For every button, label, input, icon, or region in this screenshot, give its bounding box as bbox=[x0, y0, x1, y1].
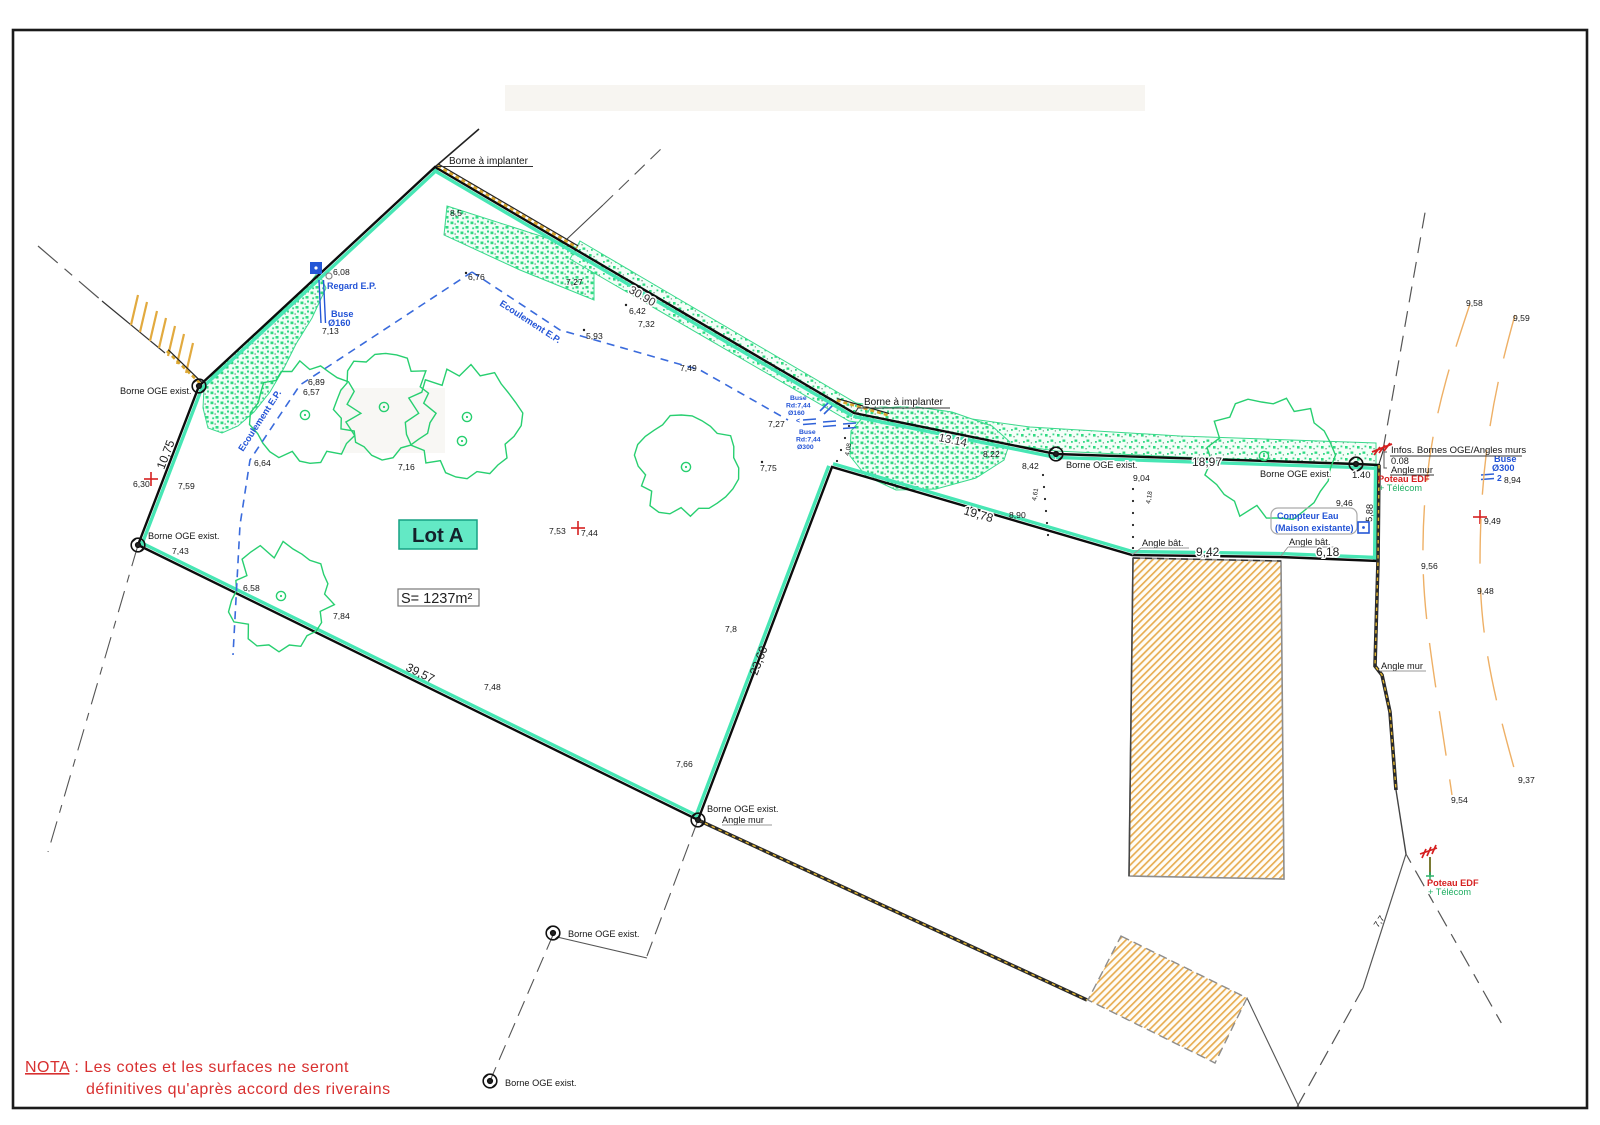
svg-text:6,18: 6,18 bbox=[1316, 545, 1340, 559]
svg-text:Borne OGE exist.: Borne OGE exist. bbox=[707, 804, 779, 814]
svg-text:5,88: 5,88 bbox=[1364, 504, 1375, 522]
svg-text:Borne OGE exist.: Borne OGE exist. bbox=[1260, 469, 1332, 479]
svg-text:NOTA : Les cotes et les surfac: NOTA : Les cotes et les surfaces ne sero… bbox=[25, 1059, 349, 1076]
svg-text:Buse: Buse bbox=[799, 429, 816, 436]
svg-text:7,44: 7,44 bbox=[581, 528, 598, 538]
svg-text:9,58: 9,58 bbox=[1466, 298, 1483, 308]
svg-text:7,48: 7,48 bbox=[484, 682, 501, 692]
svg-text:2: 2 bbox=[1497, 473, 1502, 483]
svg-text:6,42: 6,42 bbox=[629, 306, 646, 316]
svg-text:7,27: 7,27 bbox=[566, 277, 583, 287]
svg-text:Borne OGE exist.: Borne OGE exist. bbox=[505, 1078, 577, 1088]
svg-text:(Maison existante): (Maison existante) bbox=[1275, 523, 1354, 533]
svg-text:<: < bbox=[796, 418, 800, 425]
svg-text:8,94: 8,94 bbox=[1504, 475, 1521, 485]
svg-text:6,57: 6,57 bbox=[303, 387, 320, 397]
svg-text:7,75: 7,75 bbox=[760, 463, 777, 473]
svg-text:6,64: 6,64 bbox=[254, 458, 271, 468]
svg-text:Angle mur: Angle mur bbox=[722, 815, 764, 825]
svg-text:définitives qu'après accord de: définitives qu'après accord des riverain… bbox=[86, 1081, 391, 1098]
svg-text:6,30: 6,30 bbox=[133, 479, 150, 489]
svg-text:Infos. Bornes OGE/Angles murs: Infos. Bornes OGE/Angles murs bbox=[1391, 445, 1526, 456]
svg-text:6,08: 6,08 bbox=[333, 267, 350, 277]
svg-text:S= 1237m²: S= 1237m² bbox=[401, 591, 473, 607]
svg-text:Compteur Eau: Compteur Eau bbox=[1277, 511, 1339, 521]
svg-text:8,5: 8,5 bbox=[450, 208, 462, 218]
svg-text:6,58: 6,58 bbox=[243, 583, 260, 593]
svg-text:Borne OGE exist.: Borne OGE exist. bbox=[148, 531, 220, 541]
svg-text:9,48: 9,48 bbox=[1477, 586, 1494, 596]
svg-text:9,42: 9,42 bbox=[1196, 545, 1220, 559]
svg-text:Ø160: Ø160 bbox=[328, 318, 350, 328]
svg-text:8,22: 8,22 bbox=[983, 449, 1000, 459]
svg-text:9,54: 9,54 bbox=[1451, 795, 1468, 805]
svg-text:8,42: 8,42 bbox=[1022, 461, 1039, 471]
svg-text:Borne OGE exist.: Borne OGE exist. bbox=[1066, 460, 1138, 470]
svg-text:Regard E.P.: Regard E.P. bbox=[327, 281, 376, 291]
svg-text:Rd:7,44: Rd:7,44 bbox=[786, 403, 811, 410]
svg-text:Angle bât.: Angle bât. bbox=[1142, 538, 1183, 548]
svg-text:7,66: 7,66 bbox=[676, 759, 693, 769]
svg-text:+ Télécom: + Télécom bbox=[1428, 887, 1471, 897]
svg-text:9,56: 9,56 bbox=[1421, 561, 1438, 571]
svg-text:Angle mur: Angle mur bbox=[1381, 661, 1423, 671]
svg-text:1.40: 1.40 bbox=[1352, 470, 1371, 481]
svg-text:8,90: 8,90 bbox=[1009, 510, 1026, 520]
svg-text:7,53: 7,53 bbox=[549, 526, 566, 536]
svg-text:9,59: 9,59 bbox=[1513, 313, 1530, 323]
svg-text:Lot A: Lot A bbox=[412, 524, 464, 547]
svg-text:Borne à implanter: Borne à implanter bbox=[864, 397, 944, 408]
svg-text:7,27: 7,27 bbox=[768, 419, 785, 429]
svg-text:Ø300: Ø300 bbox=[1492, 463, 1514, 473]
svg-text:7,84: 7,84 bbox=[333, 611, 350, 621]
svg-text:9,46: 9,46 bbox=[1336, 498, 1353, 508]
svg-text:7,59: 7,59 bbox=[178, 481, 195, 491]
svg-text:Buse: Buse bbox=[790, 395, 807, 402]
svg-text:7,43: 7,43 bbox=[172, 546, 189, 556]
svg-text:Borne OGE exist.: Borne OGE exist. bbox=[120, 386, 192, 396]
svg-text:Borne OGE exist.: Borne OGE exist. bbox=[568, 929, 640, 939]
svg-text:9,37: 9,37 bbox=[1518, 775, 1535, 785]
svg-text:18,97: 18,97 bbox=[1192, 455, 1222, 469]
svg-text:5,93: 5,93 bbox=[586, 331, 603, 341]
svg-text:Ø300: Ø300 bbox=[797, 444, 814, 451]
svg-text:9,04: 9,04 bbox=[1133, 473, 1150, 483]
svg-text:7,49: 7,49 bbox=[680, 363, 697, 373]
svg-text:+ Télécom: + Télécom bbox=[1379, 483, 1422, 493]
svg-text:9,49: 9,49 bbox=[1484, 516, 1501, 526]
svg-text:Rd:7,44: Rd:7,44 bbox=[796, 437, 821, 444]
svg-text:6,76: 6,76 bbox=[468, 272, 485, 282]
svg-text:7,16: 7,16 bbox=[398, 462, 415, 472]
svg-text:Borne à implanter: Borne à implanter bbox=[449, 156, 529, 167]
svg-text:6,89: 6,89 bbox=[308, 377, 325, 387]
svg-text:Ø160: Ø160 bbox=[788, 410, 805, 417]
svg-text:7,8: 7,8 bbox=[725, 624, 737, 634]
svg-text:7,32: 7,32 bbox=[638, 319, 655, 329]
